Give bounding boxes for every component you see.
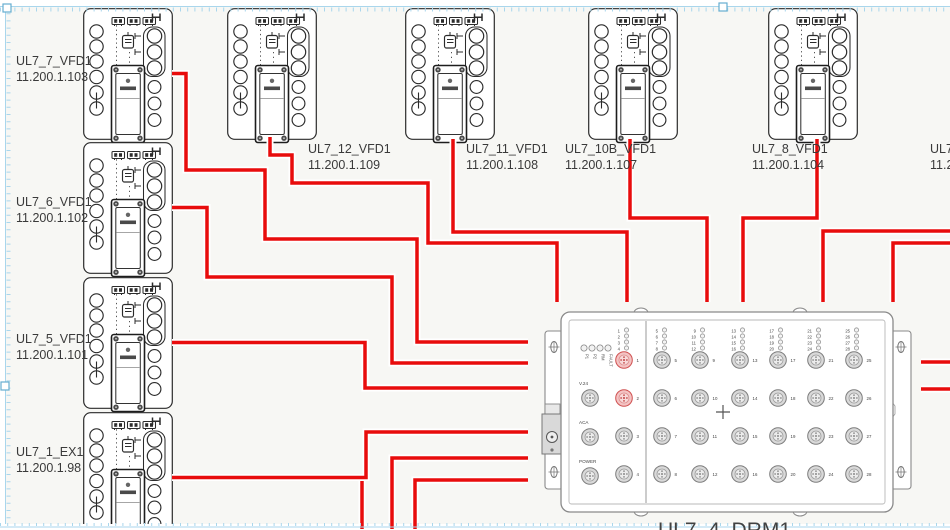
drm-port-16 <box>732 466 749 483</box>
drm-port-number: 24 <box>829 472 834 477</box>
drm-port-19 <box>770 428 787 445</box>
device-UL7_5_VFD1[interactable] <box>84 278 173 412</box>
drm-name-label: UL7_4_DRM1 <box>658 519 791 530</box>
drm-port-14 <box>732 390 749 407</box>
drm-led-number: 27 <box>845 340 850 345</box>
drm-port-10 <box>692 390 709 407</box>
device-name-label: UL7_1_EX1 <box>16 445 83 459</box>
drm-connector-ACA <box>582 429 599 446</box>
drm-led-number: 13 <box>731 328 736 333</box>
drm-led-number: 11 <box>692 340 697 345</box>
drm-led-number: 14 <box>731 334 736 339</box>
vfd-device-drawing <box>589 9 678 143</box>
drm-port-18 <box>770 390 787 407</box>
drm-port-11 <box>692 428 709 445</box>
drm-led-number: 24 <box>807 346 812 351</box>
drm-led-number: 12 <box>691 346 696 351</box>
device-name-label: UL7_ <box>930 142 950 156</box>
drm-port-9 <box>692 352 709 369</box>
drm-port-number: 21 <box>829 358 834 363</box>
drm-port-number: 19 <box>791 434 796 439</box>
selection-handle[interactable] <box>1 382 9 390</box>
drm-port-number: 15 <box>753 434 758 439</box>
drm-led-number: 25 <box>845 328 850 333</box>
diagram-canvas[interactable]: P1P2RMFAULTV.24ACAPOWER12345678910111213… <box>0 0 950 530</box>
drm-port-22 <box>808 390 825 407</box>
drm-port-8 <box>654 466 671 483</box>
drm-connector-label: ACA <box>579 420 589 425</box>
drm-connector-V.24 <box>582 390 599 407</box>
drm-port-28 <box>846 466 863 483</box>
device-name-label: UL7_6_VFD1 <box>16 195 92 209</box>
drm-port-4 <box>616 466 633 483</box>
drm-port-number: 22 <box>829 396 834 401</box>
drm-port-23 <box>808 428 825 445</box>
device-name-label: UL7_5_VFD1 <box>16 332 92 346</box>
device-ip-label: 11.200.1.108 <box>466 158 538 172</box>
vfd-device-drawing <box>406 9 495 143</box>
drm-status-led-FAULT <box>605 345 611 351</box>
device-ip-label: 11.200.1.101 <box>16 348 88 362</box>
drm-port-27 <box>846 428 863 445</box>
drm-connector-label: POWER <box>579 459 597 464</box>
drm-port-2 <box>616 390 633 407</box>
vfd-device-drawing <box>228 9 317 143</box>
device-UL7_7_VFD1[interactable] <box>84 9 173 143</box>
device-UL7_10B_VFD1[interactable] <box>589 9 678 143</box>
device-ip-label: 11.2 <box>930 158 950 172</box>
drm-port-number: 16 <box>753 472 758 477</box>
drm-port-number: 26 <box>867 396 872 401</box>
network-topology-diagram[interactable]: P1P2RMFAULTV.24ACAPOWER12345678910111213… <box>0 0 950 530</box>
drm-connector-label: V.24 <box>579 381 588 386</box>
drm-status-led-label: P1 <box>585 354 590 360</box>
device-name-label: UL7_8_VFD1 <box>752 142 828 156</box>
device-ip-label: 11.200.1.103 <box>16 70 88 84</box>
drm-port-7 <box>654 428 671 445</box>
drm-led-number: 20 <box>769 346 774 351</box>
drm-port-20 <box>770 466 787 483</box>
device-UL7_6_VFD1[interactable] <box>84 143 173 277</box>
device-name-label: UL7_12_VFD1 <box>308 142 391 156</box>
drm-led-number: 16 <box>731 346 736 351</box>
drm-led-number: 10 <box>691 334 696 339</box>
drm-led-number: 18 <box>769 334 774 339</box>
drm-led-number: 19 <box>769 340 774 345</box>
drm-port-26 <box>846 390 863 407</box>
device-name-label: UL7_7_VFD1 <box>16 54 92 68</box>
selection-handle[interactable] <box>3 4 11 12</box>
device-ip-label: 11.200.1.104 <box>752 158 824 172</box>
drm-port-number: 14 <box>753 396 758 401</box>
drm-port-15 <box>732 428 749 445</box>
device-name-label: UL7_11_VFD1 <box>466 142 548 156</box>
drm-status-led-label: P2 <box>593 354 598 360</box>
vfd-device-drawing <box>769 9 858 143</box>
drm-led-number: 15 <box>731 340 736 345</box>
device-UL7_4_DRM1[interactable]: P1P2RMFAULTV.24ACAPOWER12345678910111213… <box>542 308 911 516</box>
drm-port-1 <box>616 352 633 369</box>
drm-status-led-P2 <box>589 345 595 351</box>
vfd-device-drawing <box>84 9 173 143</box>
device-UL7_12_VFD1[interactable] <box>228 9 317 143</box>
drm-port-number: 12 <box>713 472 718 477</box>
drm-port-number: 23 <box>829 434 834 439</box>
drm-status-led-label: FAULT <box>609 354 614 367</box>
drm-port-number: 13 <box>753 358 758 363</box>
drm-port-number: 10 <box>713 396 718 401</box>
drm-port-12 <box>692 466 709 483</box>
drm-port-number: 28 <box>867 472 872 477</box>
drm-port-24 <box>808 466 825 483</box>
drm-port-25 <box>846 352 863 369</box>
drm-port-17 <box>770 352 787 369</box>
device-ip-label: 11.200.1.107 <box>565 158 637 172</box>
device-name-label: UL7_10B_VFD1 <box>565 142 656 156</box>
drm-status-led-P1 <box>581 345 587 351</box>
drm-port-6 <box>654 390 671 407</box>
drm-led-number: 21 <box>807 328 812 333</box>
drm-port-number: 18 <box>791 396 796 401</box>
vfd-device-drawing <box>84 278 173 412</box>
drm-port-number: 17 <box>791 358 796 363</box>
drm-led-number: 28 <box>845 346 850 351</box>
device-ip-label: 11.200.1.98 <box>16 461 81 475</box>
device-ip-label: 11.200.1.109 <box>308 158 380 172</box>
drm-led-number: 23 <box>807 340 812 345</box>
drm-port-5 <box>654 352 671 369</box>
drm-port-number: 20 <box>791 472 796 477</box>
drm-led-number: 17 <box>769 328 774 333</box>
device-ip-label: 11.200.1.102 <box>16 211 88 225</box>
drm-led-number: 22 <box>807 334 812 339</box>
drm-status-led-RM <box>597 345 603 351</box>
selection-handle[interactable] <box>719 3 727 11</box>
drm-status-led-label: RM <box>601 354 606 361</box>
drm-port-number: 27 <box>867 434 872 439</box>
device-UL7_11_VFD1[interactable] <box>406 9 495 143</box>
vfd-device-drawing <box>84 143 173 277</box>
drm-port-21 <box>808 352 825 369</box>
drm-port-13 <box>732 352 749 369</box>
drm-connector-POWER <box>582 468 599 485</box>
drm-port-3 <box>616 428 633 445</box>
device-UL7_8_VFD1[interactable] <box>769 9 858 143</box>
drm-led-number: 26 <box>845 334 850 339</box>
device-UL7_1_EX1[interactable] <box>84 413 173 530</box>
vfd-device-drawing <box>84 413 173 530</box>
drm-port-number: 11 <box>713 434 718 439</box>
drm-port-number: 25 <box>867 358 872 363</box>
